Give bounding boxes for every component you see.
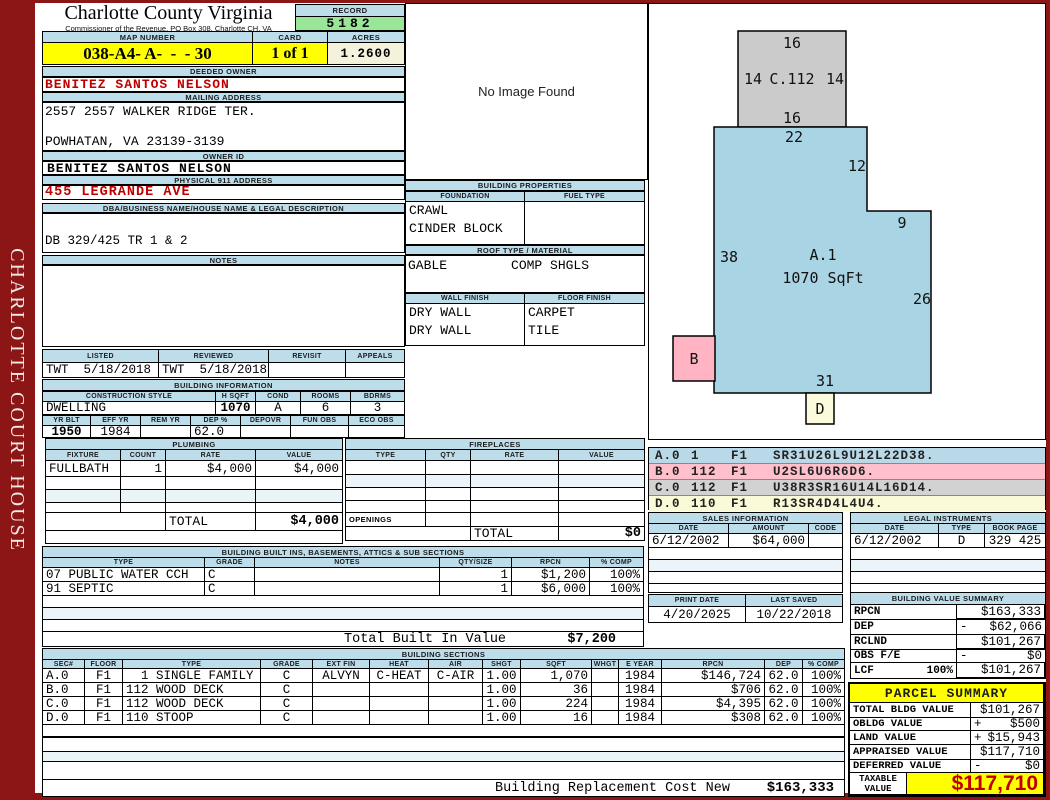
section-sqft: 16 (521, 711, 592, 725)
plumbing-fixture: FULLBATH (46, 461, 121, 477)
sketch-b-label: B (689, 350, 698, 368)
section-whgt (592, 711, 619, 725)
fireplaces-header-qty: QTY (426, 450, 471, 461)
empty-cell (426, 501, 471, 513)
dba-label: DBA/BUSINESS NAME/HOUSE NAME & LEGAL DES… (42, 203, 405, 213)
vector-code: 1 (691, 449, 731, 463)
section-rpcn: $308 (662, 711, 765, 725)
empty-cell (46, 490, 121, 503)
empty-cell (649, 548, 843, 560)
built-ins-total-label: Total Built In Value (344, 632, 506, 647)
sections-header: SHGT (483, 660, 521, 669)
foundation-fuel-table: FOUNDATION FUEL TYPE CRAWL CINDER BLOCK (405, 191, 645, 245)
section-rpcn: $4,395 (662, 697, 765, 711)
floor-finish-line1: CARPET (528, 305, 575, 320)
sketch-a-area: 1070 SqFt (782, 269, 863, 287)
empty-cell (256, 490, 343, 503)
sketch-svg: 16 14 C.112 14 16 22 12 9 38 A.1 1070 Sq… (649, 4, 1045, 439)
plumbing-total-label: TOTAL (166, 513, 256, 531)
vector-row: D.0 110 F1 R13SR4D4L4U4. (649, 496, 1045, 511)
built-in-grade: C (205, 568, 255, 582)
building-sections-table: BUILDING SECTIONS SEC# FLOOR TYPE GRADE … (42, 648, 845, 737)
section-shgt: 1.00 (483, 683, 521, 697)
parcel-summary-title: PARCEL SUMMARY (850, 684, 1044, 703)
vector-code: 112 (691, 465, 731, 479)
vector-sec: A.0 (649, 449, 691, 463)
building-sections-title: BUILDING SECTIONS (43, 649, 845, 660)
vs-label: RCLND (851, 635, 957, 650)
review-table: LISTED REVIEWED REVISIT APPEALS TWT 5/18… (42, 349, 405, 378)
empty-cell (649, 584, 843, 593)
section-sec: B.0 (43, 683, 85, 697)
sections-header: DEP (765, 660, 803, 669)
legal-table: LEGAL INSTRUMENTS DATE TYPE BOOK PAGE 6/… (850, 512, 1046, 593)
print-date-value: 4/20/2025 (649, 607, 746, 623)
dim-a-right: 26 (913, 290, 931, 308)
empty-cell (471, 488, 559, 501)
sections-header: TYPE (123, 660, 261, 669)
vector-code: 110 (691, 497, 731, 511)
section-grade: C (261, 697, 313, 711)
empty-cell (559, 461, 645, 475)
empty-cell (559, 475, 645, 488)
built-in-notes (255, 582, 440, 596)
taxable-value: $117,710 (907, 773, 1044, 795)
ps-label: APPRAISED VALUE (850, 745, 971, 760)
vs-value: $62,066 (989, 620, 1042, 634)
vs-value-row: $163,333 (957, 605, 1046, 620)
vs-value: $101,267 (981, 635, 1041, 649)
legal-header-date: DATE (851, 524, 939, 534)
dim-a-step: 9 (897, 214, 906, 232)
plumbing-count: 1 (121, 461, 166, 477)
ps-label: LAND VALUE (850, 731, 971, 745)
acres-value: 1.2600 (327, 42, 405, 65)
built-ins-header-type: TYPE (43, 558, 205, 568)
bdrms-label: BDRMS (351, 392, 405, 402)
funobs-label: FUN OBS (291, 416, 349, 426)
section-grade: C (261, 669, 313, 683)
county-header: Charlotte County Virginia Commissioner o… (42, 3, 295, 32)
ps-sign: + (974, 718, 982, 731)
section-floor: F1 (85, 683, 123, 697)
revisit-label: REVISIT (269, 350, 346, 363)
vs-label: RPCN (851, 605, 957, 620)
reviewed-label: REVIEWED (159, 350, 269, 363)
last-saved-label: LAST SAVED (746, 595, 843, 607)
section-sec: D.0 (43, 711, 85, 725)
fuel-type-label: FUEL TYPE (525, 192, 645, 202)
fuel-type-value (525, 202, 645, 245)
dim-c-right: 14 (826, 70, 844, 88)
empty-cell (166, 490, 256, 503)
empty-cell (426, 488, 471, 501)
owner-id-value: BENITEZ SANTOS NELSON (42, 161, 405, 175)
empty-cell (851, 572, 1046, 584)
record-value: 5182 (295, 16, 405, 31)
sketch-c-label: C.112 (769, 70, 814, 88)
style-value: DWELLING (43, 402, 216, 415)
empty-cell (43, 608, 644, 620)
sales-header-date: DATE (649, 524, 729, 534)
empty-cell (166, 503, 256, 513)
sections-header: E YEAR (619, 660, 662, 669)
vector-row: C.0 112 F1 U38R3SR16U14L16D14. (649, 480, 1045, 496)
dim-a-top: 22 (785, 128, 803, 146)
vector-floor: F1 (731, 465, 773, 479)
legal-type: D (939, 534, 985, 548)
sections-header: FLOOR (85, 660, 123, 669)
empty-cell (426, 461, 471, 475)
sales-title: SALES INFORMATION (649, 513, 843, 524)
sections-header: WHGT (592, 660, 619, 669)
sections-header: % COMP (803, 660, 845, 669)
built-in-qty: 1 (440, 582, 512, 596)
built-ins-header-grade: GRADE (205, 558, 255, 568)
empty-cell (429, 711, 483, 725)
ps-value: $117,710 (980, 745, 1040, 759)
legal-description: DB 329/425 TR 1 & 2 (43, 234, 188, 252)
ps-value-row: + $15,943 (971, 731, 1044, 745)
sidebar-title: CHARLOTTE COURT HOUSE (5, 248, 28, 552)
roof-material-value: COMP SHGLS (447, 256, 589, 273)
sketch-area: 16 14 C.112 14 16 22 12 9 38 A.1 1070 Sq… (648, 3, 1046, 440)
sale-date: 6/12/2002 (649, 534, 729, 548)
empty-cell (313, 683, 370, 697)
empty-cell (559, 488, 645, 501)
empty-cell (346, 527, 471, 541)
empty-cell (43, 620, 644, 632)
built-ins-total-row: Total Built In Value $7,200 (43, 632, 644, 647)
mailing-address-box: 2557 2557 WALKER RIDGE TER. POWHATAN, VA… (42, 102, 405, 151)
ps-value-row: + $500 (971, 718, 1044, 731)
section-grade: C (261, 711, 313, 725)
taxable-value-label: TAXABLE VALUE (850, 773, 907, 795)
section-eyear: 1984 (619, 669, 662, 683)
section-type: 1 SINGLE FAMILY (123, 669, 261, 683)
ps-value-row: - $0 (971, 760, 1044, 773)
vs-value-row: $101,267 (957, 635, 1046, 650)
fireplaces-header-value: VALUE (559, 450, 645, 461)
legal-description-box: DB 329/425 TR 1 & 2 (42, 213, 405, 253)
empty-cell (166, 477, 256, 490)
ps-value: $101,267 (980, 703, 1040, 717)
cond-value: A (256, 402, 301, 415)
sections-header: SEC# (43, 660, 85, 669)
plumbing-header-count: COUNT (121, 450, 166, 461)
section-sec: C.0 (43, 697, 85, 711)
built-ins-header-comp: % COMP (590, 558, 644, 568)
ecoobs-label: ECO OBS (349, 416, 405, 426)
fireplaces-table: FIREPLACES TYPE QTY RATE VALUE OPENINGS … (345, 438, 645, 541)
map-number-value: 038-A4- A- - - 30 (42, 42, 253, 65)
appeals-value (346, 363, 405, 378)
building-info-year-table: YR BLT EFF YR REM YR DEP % DEPOVR FUN OB… (42, 415, 405, 438)
remyr-value (141, 426, 191, 438)
ps-sign: - (974, 760, 982, 773)
remyr-label: REM YR (141, 416, 191, 426)
section-comp: 100% (803, 697, 845, 711)
empty-cell (559, 501, 645, 513)
hsqft-label: H SQFT (216, 392, 256, 402)
wall-finish-line2: DRY WALL (409, 323, 471, 338)
plumbing-total-value: $4,000 (256, 513, 343, 531)
section-type: 110 STOOP (123, 711, 261, 725)
section-floor: F1 (85, 697, 123, 711)
sales-header-amount: AMOUNT (729, 524, 809, 534)
vector-code: 112 (691, 481, 731, 495)
replacement-cost-value: $163,333 (730, 780, 844, 796)
built-ins-table: BUILDING BUILT INS, BASEMENTS, ATTICS & … (42, 546, 644, 647)
foundation-line2: CINDER BLOCK (409, 221, 503, 236)
sections-header: EXT FIN (313, 660, 370, 669)
ps-value: $500 (1010, 718, 1040, 731)
sections-header: GRADE (261, 660, 313, 669)
fireplaces-total-label: TOTAL (471, 527, 559, 541)
empty-cell (426, 513, 471, 527)
building-properties-title: BUILDING PROPERTIES (405, 180, 645, 191)
sales-header-code: CODE (809, 524, 843, 534)
print-info-table: PRINT DATE LAST SAVED 4/20/2025 10/22/20… (648, 594, 843, 623)
section-shgt: 1.00 (483, 711, 521, 725)
empty-cell (346, 475, 426, 488)
built-in-type: 07 PUBLIC WATER CCH (43, 568, 205, 582)
owner-id-label: OWNER ID (42, 151, 405, 161)
sale-amount: $64,000 (729, 534, 809, 548)
vs-value: $163,333 (981, 605, 1041, 619)
empty-cell (256, 477, 343, 490)
sales-table: SALES INFORMATION DATE AMOUNT CODE 6/12/… (648, 512, 843, 593)
vs-label-lcf: LCF 100% (851, 663, 957, 679)
legal-title: LEGAL INSTRUMENTS (851, 513, 1046, 524)
sale-code (809, 534, 843, 548)
section-rpcn: $146,724 (662, 669, 765, 683)
legal-header-type: TYPE (939, 524, 985, 534)
vector-sec: D.0 (649, 497, 691, 511)
built-in-comp: 100% (590, 568, 644, 582)
floor-finish-line2: TILE (528, 323, 575, 338)
vs-sign: - (960, 650, 968, 663)
ps-value: $0 (1025, 760, 1040, 773)
empty-cell (121, 490, 166, 503)
vs-label: LCF (854, 665, 874, 677)
appeals-label: APPEALS (346, 350, 405, 363)
section-dep: 62.0 (765, 697, 803, 711)
hsqft-value: 1070 (216, 402, 256, 415)
ps-label: DEFERRED VALUE (850, 760, 971, 773)
style-label: CONSTRUCTION STYLE (43, 392, 216, 402)
empty-strip (42, 737, 845, 752)
plumbing-rate: $4,000 (166, 461, 256, 477)
rooms-value: 6 (301, 402, 351, 415)
roof-type-value: GABLE (406, 256, 447, 273)
empty-cell (851, 548, 1046, 560)
empty-cell (426, 475, 471, 488)
floor-finish-label: FLOOR FINISH (525, 294, 645, 304)
mailing-line2: POWHATAN, VA 23139-3139 (45, 134, 256, 149)
card-value: 1 of 1 (252, 42, 328, 65)
empty-cell (649, 560, 843, 572)
empty-cell (649, 572, 843, 584)
vs-label: DEP (851, 620, 957, 635)
physical-address-value: 455 LEGRANDE AVE (42, 185, 405, 200)
notes-box (42, 265, 405, 347)
roof-values: GABLE COMP SHGLS (405, 255, 645, 293)
wall-finish-value: DRY WALL DRY WALL (406, 304, 525, 346)
section-sec: A.0 (43, 669, 85, 683)
yrblt-value: 1950 (43, 426, 91, 438)
built-ins-header-qty: QTY/SIZE (440, 558, 512, 568)
ps-value-row: $101,267 (971, 703, 1044, 718)
notes-label: NOTES (42, 255, 405, 265)
empty-cell (121, 503, 166, 513)
fireplaces-header-rate: RATE (471, 450, 559, 461)
section-comp: 100% (803, 683, 845, 697)
yrblt-label: YR BLT (43, 416, 91, 426)
empty-cell (121, 477, 166, 490)
building-info-style-table: CONSTRUCTION STYLE H SQFT COND ROOMS BDR… (42, 391, 405, 415)
sections-header: HEAT (370, 660, 429, 669)
vector-row: A.0 1 F1 SR31U26L9U12L22D38. (649, 448, 1045, 464)
section-eyear: 1984 (619, 697, 662, 711)
county-title: Charlotte County Virginia (42, 3, 295, 24)
section-type: 112 WOOD DECK (123, 683, 261, 697)
sections-header: RPCN (662, 660, 765, 669)
built-in-rpcn: $1,200 (512, 568, 590, 582)
empty-cell (46, 503, 121, 513)
legal-date: 6/12/2002 (851, 534, 939, 548)
mailing-line1: 2557 2557 WALKER RIDGE TER. (45, 104, 256, 119)
dim-a-left: 38 (720, 248, 738, 266)
vs-value: $0 (1027, 650, 1042, 663)
foundation-label: FOUNDATION (406, 192, 525, 202)
depovr-value (241, 426, 291, 438)
dep-label: DEP % (191, 416, 241, 426)
vector-list: A.0 1 F1 SR31U26L9U12L22D38. B.0 112 F1 … (648, 447, 1046, 510)
plumbing-title: PLUMBING (46, 439, 343, 450)
empty-cell (370, 683, 429, 697)
replacement-cost-label: Building Replacement Cost New (495, 781, 730, 796)
section-comp: 100% (803, 669, 845, 683)
built-ins-title: BUILDING BUILT INS, BASEMENTS, ATTICS & … (43, 547, 644, 558)
section-type: 112 WOOD DECK (123, 697, 261, 711)
built-in-comp: 100% (590, 582, 644, 596)
sections-header: AIR (429, 660, 483, 669)
vector-row: B.0 112 F1 U2SL6U6R6D6. (649, 464, 1045, 480)
vector-sec: B.0 (649, 465, 691, 479)
deeded-owner-value: BENITEZ SANTOS NELSON (42, 77, 405, 92)
dim-c-bottom: 16 (783, 109, 801, 127)
floor-finish-value: CARPET TILE (525, 304, 645, 346)
built-in-qty: 1 (440, 568, 512, 582)
dim-a-right-upper: 12 (848, 157, 866, 175)
section-air: C-AIR (429, 669, 483, 683)
section-extfin: ALVYN (313, 669, 370, 683)
listed-value: TWT 5/18/2018 (43, 363, 159, 378)
section-dep: 62.0 (765, 711, 803, 725)
built-in-type: 91 SEPTIC (43, 582, 205, 596)
vector-floor: F1 (731, 481, 773, 495)
plumbing-header-fixture: FIXTURE (46, 450, 121, 461)
effyr-label: EFF YR (91, 416, 141, 426)
sketch-d-label: D (815, 400, 824, 418)
photo-placeholder: No Image Found (405, 3, 648, 180)
reviewed-value: TWT 5/18/2018 (159, 363, 269, 378)
depovr-label: DEPOVR (241, 416, 291, 426)
empty-cell (559, 513, 645, 527)
section-floor: F1 (85, 669, 123, 683)
openings-label: OPENINGS (346, 513, 426, 527)
empty-strip (42, 761, 845, 780)
empty-cell (346, 488, 426, 501)
building-information-title: BUILDING INFORMATION (42, 379, 405, 391)
listed-label: LISTED (43, 350, 159, 363)
built-ins-total-value: $7,200 (506, 632, 616, 647)
plumbing-header-value: VALUE (256, 450, 343, 461)
building-value-summary: BUILDING VALUE SUMMARY RPCN $163,333 DEP… (850, 592, 1046, 679)
effyr-value: 1984 (91, 426, 141, 438)
vs-value-row: - $62,066 (957, 620, 1046, 635)
dim-c-left: 14 (744, 70, 762, 88)
ps-value: $15,943 (987, 731, 1040, 745)
vector-floor: F1 (731, 497, 773, 511)
section-eyear: 1984 (619, 711, 662, 725)
legal-header-bookpage: BOOK PAGE (985, 524, 1046, 534)
section-shgt: 1.00 (483, 697, 521, 711)
funobs-value (291, 426, 349, 438)
built-ins-header-rpcn: RPCN (512, 558, 590, 568)
plumbing-header-rate: RATE (166, 450, 256, 461)
plumbing-value: $4,000 (256, 461, 343, 477)
section-whgt (592, 683, 619, 697)
section-rpcn: $706 (662, 683, 765, 697)
empty-cell (256, 503, 343, 513)
legal-bookpage: 329 425 (985, 534, 1046, 548)
section-whgt (592, 697, 619, 711)
fireplaces-header-type: TYPE (346, 450, 426, 461)
sketch-a-label: A.1 (809, 246, 836, 264)
ps-value-row: $117,710 (971, 745, 1044, 760)
revisit-value (269, 363, 346, 378)
built-ins-header-notes: NOTES (255, 558, 440, 568)
empty-cell (313, 697, 370, 711)
section-sqft: 224 (521, 697, 592, 711)
empty-cell (471, 513, 559, 527)
sections-header: SQFT (521, 660, 592, 669)
empty-cell (370, 711, 429, 725)
empty-cell (43, 725, 845, 737)
replacement-cost-row: Building Replacement Cost New $163,333 (42, 779, 845, 797)
vs-value-row: - $0 (957, 650, 1046, 663)
foundation-value: CRAWL CINDER BLOCK (406, 202, 525, 245)
deeded-owner-label: DEEDED OWNER (42, 66, 405, 77)
built-in-notes (255, 568, 440, 582)
ecoobs-value (349, 426, 405, 438)
empty-cell (471, 461, 559, 475)
built-in-rpcn: $6,000 (512, 582, 590, 596)
empty-cell (46, 531, 343, 544)
print-date-label: PRINT DATE (649, 595, 746, 607)
foundation-line1: CRAWL (409, 203, 503, 218)
no-image-text: No Image Found (478, 84, 575, 99)
empty-cell (429, 683, 483, 697)
vector-path: SR31U26L9U12L22D38. (773, 449, 935, 463)
section-comp: 100% (803, 711, 845, 725)
vector-path: R13SR4D4L4U4. (773, 497, 884, 511)
vs-lcf-pct: 100% (927, 665, 953, 677)
vector-floor: F1 (731, 449, 773, 463)
section-floor: F1 (85, 711, 123, 725)
